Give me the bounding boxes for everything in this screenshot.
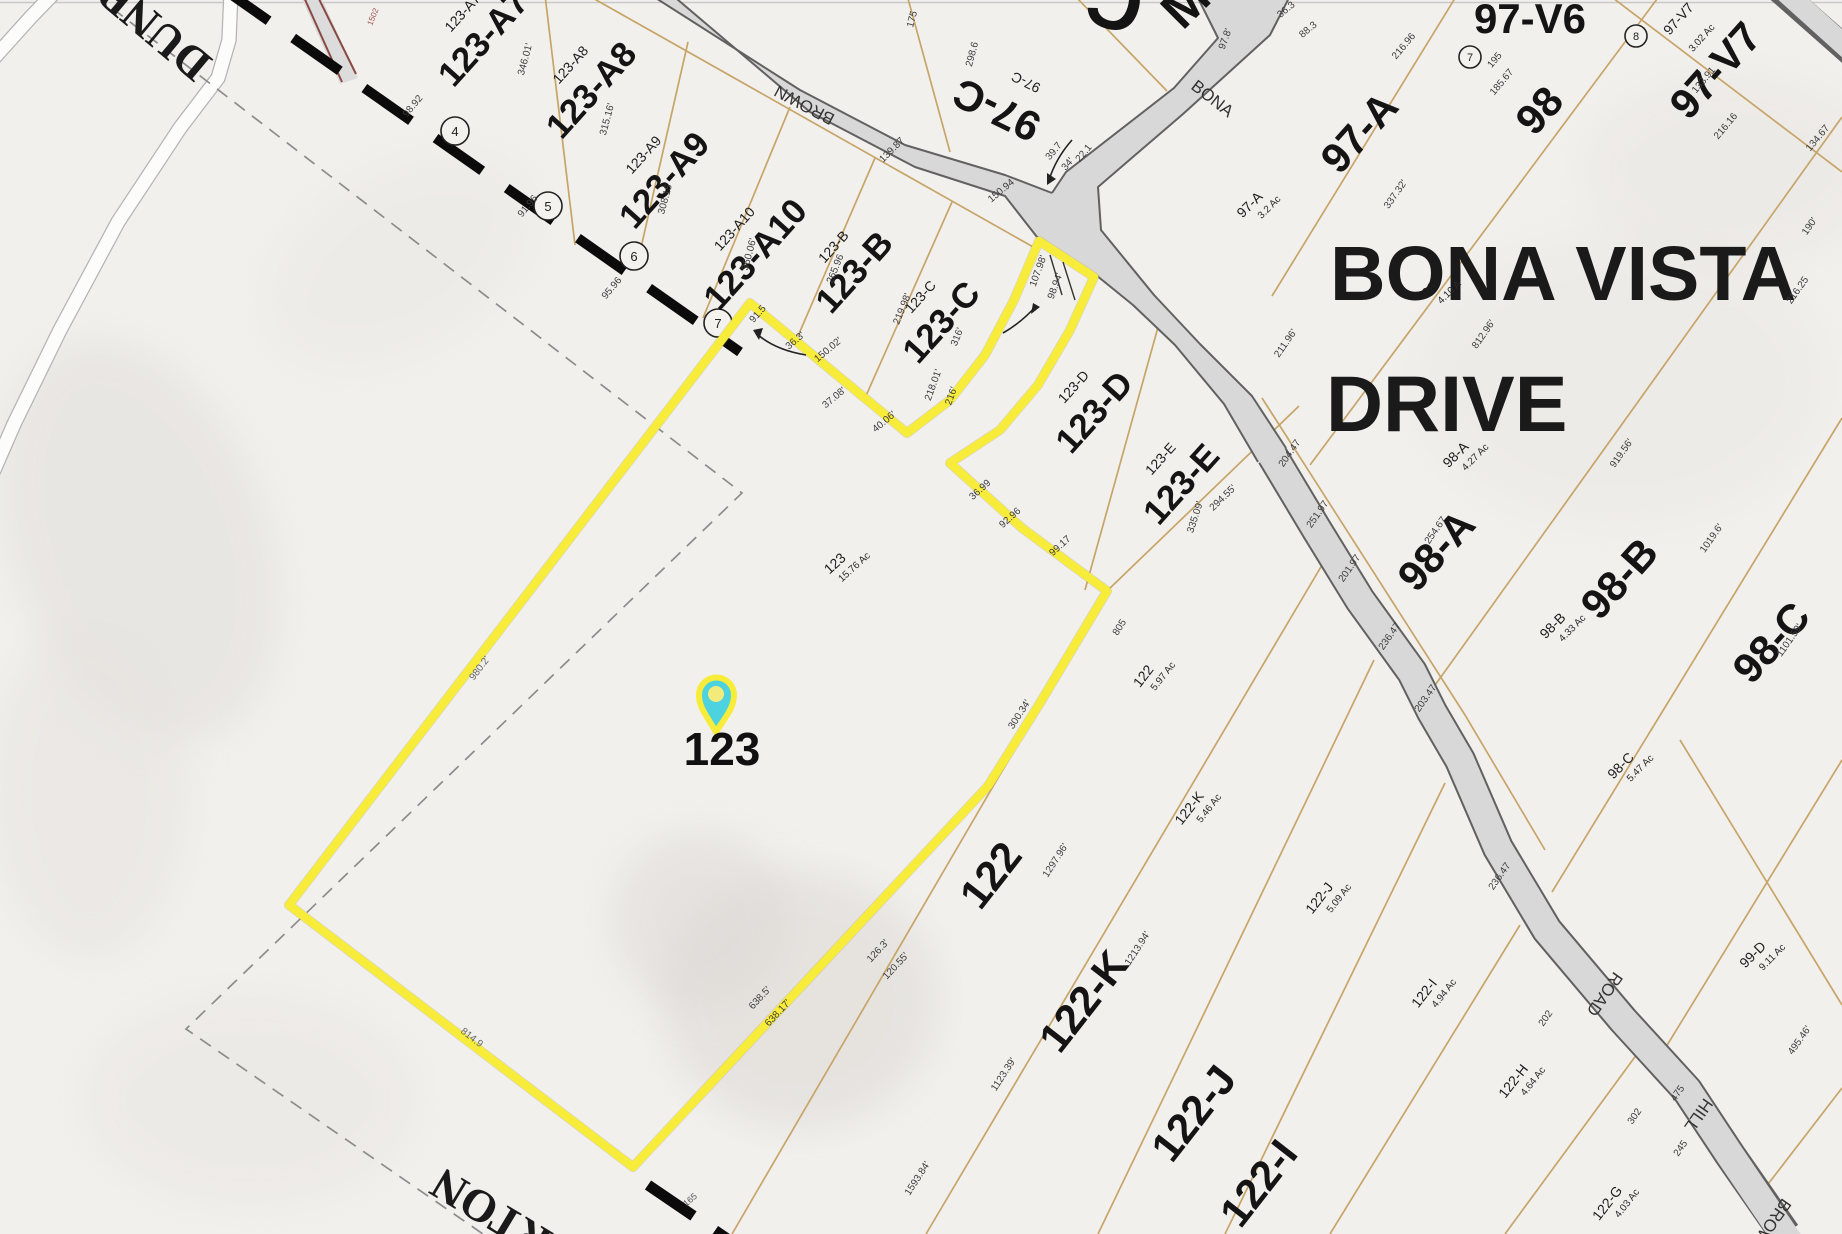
svg-text:4: 4 [451, 124, 458, 139]
svg-text:123: 123 [684, 723, 761, 775]
svg-text:6: 6 [630, 249, 637, 264]
svg-text:7: 7 [714, 316, 721, 331]
svg-text:BONA VISTA: BONA VISTA [1330, 231, 1796, 317]
svg-text:8: 8 [1633, 31, 1639, 43]
svg-text:DRIVE: DRIVE [1326, 359, 1567, 448]
svg-text:7: 7 [1467, 52, 1473, 64]
svg-text:5: 5 [544, 199, 551, 214]
svg-text:97-V6: 97-V6 [1474, 0, 1586, 42]
